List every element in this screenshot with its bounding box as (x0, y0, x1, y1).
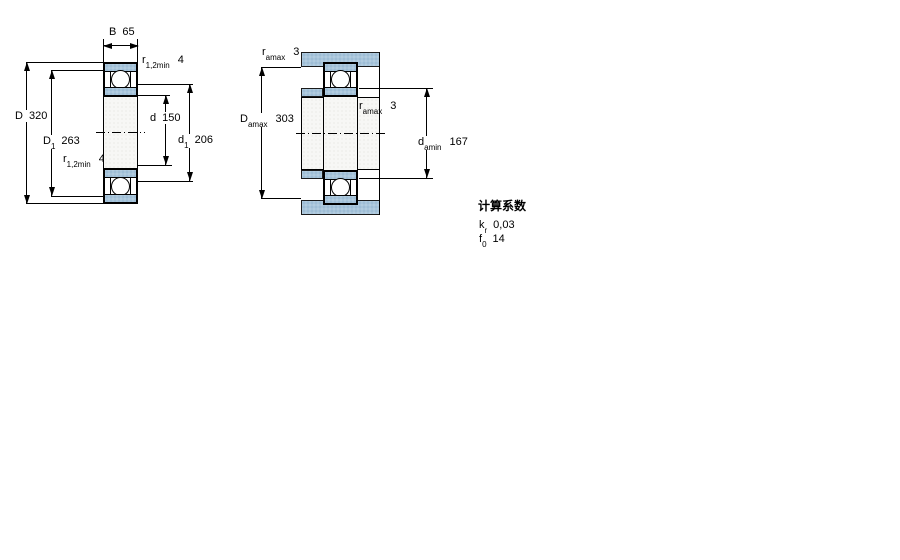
Damax-extension-line-top (261, 67, 301, 68)
arrowhead-down (49, 187, 55, 196)
damin-extension-line-top (359, 88, 433, 89)
shaft-shoulder-top (301, 88, 323, 97)
damin-extension-line-bottom (359, 178, 433, 179)
arrowhead-down (424, 169, 430, 178)
arrowhead-down (24, 195, 30, 204)
Damax-extension-line-bottom (261, 198, 301, 199)
dim-label-d1: d1206 (176, 134, 215, 148)
arrowhead-up (187, 84, 193, 93)
outer-ring-section (325, 195, 356, 203)
dim-label-r12min-bottom: r1,2min4 (63, 153, 105, 167)
D-extension-line-bottom (26, 203, 105, 204)
factor-f0: f014 (479, 233, 505, 247)
Damax-dimension-line (261, 67, 262, 199)
dim-label-r12min-top: r1,2min4 (142, 54, 184, 68)
bearing-dimension-drawing: B65 r1,2min4 D320 D1263 r1,2min4 (0, 0, 900, 560)
d-extension-line-bottom (138, 165, 172, 166)
bearing-top-ring-section (103, 62, 138, 97)
dim-label-D1: D1263 (41, 135, 82, 149)
dim-label-damin: damin167 (416, 136, 470, 150)
ring-face-line (350, 71, 351, 88)
d-dimension-line (165, 95, 166, 165)
dim-label-d: d150 (148, 112, 182, 124)
arrowhead-right (130, 43, 139, 49)
ring-face-line (130, 178, 131, 195)
bearing-bottom-ring-section (103, 168, 138, 204)
arrowhead-down (187, 172, 193, 181)
damin-dimension-line (426, 88, 427, 178)
ring-face-line (130, 71, 131, 88)
axis-centerline (296, 133, 386, 134)
dim-label-D: D320 (13, 110, 49, 122)
factor-kr: kr0,03 (479, 219, 515, 233)
arrowhead-up (163, 95, 169, 104)
axis-centerline (96, 132, 145, 133)
D1-dimension-line (51, 70, 52, 196)
dim-label-B: B65 (109, 26, 135, 38)
calc-factors-title: 计算系数 (478, 197, 526, 214)
arrowhead-up (259, 67, 265, 76)
D-extension-line-top (26, 62, 103, 63)
arrowhead-up (49, 70, 55, 79)
bearing-bottom-ring-section (323, 170, 358, 205)
arrowhead-down (259, 190, 265, 199)
inner-ring-section (325, 87, 356, 95)
arrowhead-up (24, 62, 30, 71)
d1-extension-line-top (138, 84, 193, 85)
d1-extension-line-bottom (138, 181, 193, 182)
outer-ring-section (105, 194, 136, 202)
d1-dimension-line (189, 84, 190, 181)
dim-label-ramax-mid: ramax3 (359, 100, 396, 114)
arrowhead-left (103, 43, 112, 49)
shaft-shoulder-bottom (301, 170, 323, 179)
dim-label-ramax-top: ramax3 (262, 46, 299, 60)
arrowhead-up (424, 88, 430, 97)
D1-extension-line-bottom (51, 196, 103, 197)
dim-label-Damax: Damax303 (238, 113, 296, 127)
arrowhead-down (163, 156, 169, 165)
bearing-top-ring-section (323, 62, 358, 97)
D-dimension-line (26, 62, 27, 204)
D1-extension-line-top (51, 70, 103, 71)
inner-ring-section (105, 87, 136, 95)
